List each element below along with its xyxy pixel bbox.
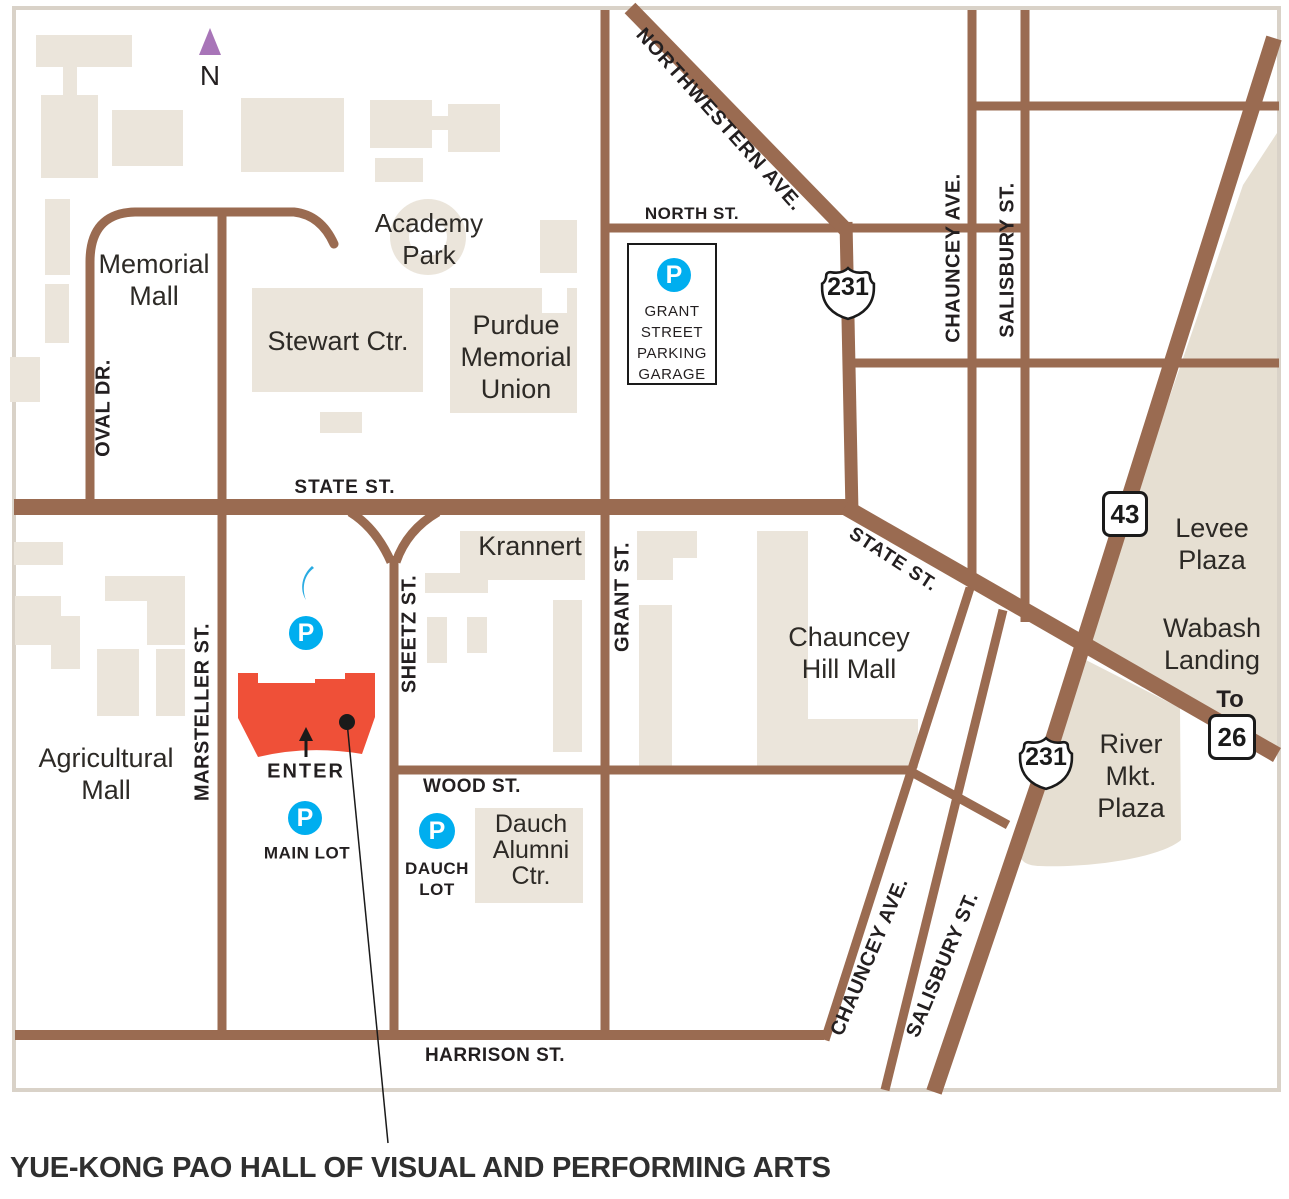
building [105, 576, 185, 601]
callout-line [347, 722, 388, 1143]
memorial-mall-label: MemorialMall [98, 248, 209, 312]
building [425, 573, 488, 593]
grant-street-label: GRANT ST. [612, 542, 635, 652]
building [45, 284, 69, 343]
label-line: Park [375, 239, 483, 271]
building [448, 104, 500, 152]
us-231-shield: 231 [819, 265, 877, 321]
agricultural-mall-label: AgriculturalMall [38, 742, 173, 806]
building [112, 110, 183, 166]
building [51, 616, 80, 669]
label-line: Agricultural [38, 742, 173, 774]
fountain-crescent [302, 566, 314, 600]
building [63, 67, 77, 95]
sheetz-street-road [396, 512, 438, 562]
label-line: Dauch [493, 811, 569, 837]
sheetz-street-label: SHEETZ ST. [399, 575, 422, 693]
parking-letter: P [297, 804, 314, 833]
label-line: Hill Mall [788, 653, 910, 685]
route-26-shield: 26 [1208, 714, 1256, 760]
building [637, 558, 673, 580]
grant-street-parking-garage-box: P GRANT STREET PARKING GARAGE [627, 243, 717, 385]
wabash-landing-label: WabashLanding [1163, 612, 1261, 676]
label-line: Wabash [1163, 612, 1261, 644]
building [432, 116, 450, 130]
map-graphic [0, 0, 1289, 1199]
building [467, 617, 487, 653]
building [36, 35, 132, 67]
building [375, 158, 423, 182]
building [14, 542, 63, 565]
building [97, 649, 139, 716]
salisbury-street-label-top: SALISBURY ST. [997, 182, 1020, 337]
label-line: Chauncey [788, 621, 910, 653]
garage-label: GRANT STREET PARKING GARAGE [629, 301, 715, 385]
compass-n-label: N [200, 60, 220, 92]
label-line: Levee [1175, 512, 1249, 544]
building [147, 601, 185, 645]
building [427, 617, 447, 663]
oval-drive-label: OVAL DR. [93, 359, 116, 457]
label-line: Mall [38, 774, 173, 806]
label-line: Ctr. [493, 863, 569, 889]
parking-letter: P [666, 261, 683, 290]
chauncey-avenue-label-top: CHAUNCEY AVE. [943, 173, 966, 343]
shield-number: 231 [1017, 743, 1075, 772]
route-43-shield: 43 [1102, 491, 1148, 537]
parking-icon: P [657, 258, 691, 292]
label-line: DAUCH [405, 858, 469, 879]
label-line: Landing [1163, 644, 1261, 676]
state-street-label: STATE ST. [294, 477, 395, 499]
to-label: To [1216, 686, 1244, 714]
north-arrow-icon [199, 28, 221, 55]
building [41, 95, 98, 178]
label-line: Alumni [493, 837, 569, 863]
label-line: PARKING [629, 343, 715, 364]
label-line: Memorial [98, 248, 209, 280]
label-line: Plaza [1175, 544, 1249, 576]
label-line: LOT [405, 879, 469, 900]
north-street-label: NORTH ST. [645, 204, 739, 224]
building [370, 100, 432, 148]
label-line: Memorial [460, 341, 571, 373]
krannert-label: Krannert [478, 530, 582, 562]
harrison-street-label: HARRISON ST. [425, 1045, 565, 1067]
building [156, 649, 185, 716]
parking-letter: P [298, 619, 315, 648]
label-line: Union [460, 373, 571, 405]
parking-icon: P [288, 801, 322, 835]
label-line: Purdue [460, 309, 571, 341]
parking-icon: P [419, 813, 455, 849]
building [241, 98, 344, 172]
academy-park-label: AcademyPark [375, 207, 483, 271]
campus-map: N STATE ST. STATE ST. NORTH ST. WOOD ST.… [0, 0, 1289, 1199]
parking-letter: P [429, 817, 446, 846]
main-lot-label: MAIN LOT [264, 843, 350, 864]
levee-plaza-label: LeveePlaza [1175, 512, 1249, 576]
stewart-center-label: Stewart Ctr. [267, 325, 408, 357]
label-line: GRANT [629, 301, 715, 322]
chauncey-hill-mall-label: ChaunceyHill Mall [788, 621, 910, 685]
map-title: YUE-KONG PAO HALL OF VISUAL AND PERFORMI… [10, 1152, 831, 1185]
building [10, 357, 40, 402]
us-231-shield: 231 [1017, 735, 1075, 791]
parking-icon: P [289, 616, 323, 650]
shield-number: 231 [819, 273, 877, 302]
label-line: Mall [98, 280, 209, 312]
building [639, 605, 672, 768]
dauch-alumni-ctr-label: DauchAlumniCtr. [493, 811, 569, 889]
sheetz-street-road [350, 512, 391, 562]
label-line: GARAGE [629, 364, 715, 385]
label-line: River [1097, 728, 1165, 760]
building [540, 220, 577, 273]
dauch-lot-label: DAUCHLOT [405, 858, 469, 900]
label-line: Mkt. [1097, 760, 1165, 792]
purdue-memorial-union-label: PurdueMemorialUnion [460, 309, 571, 405]
building [553, 600, 582, 752]
chauncey-hill-mall-building [808, 719, 918, 768]
building [45, 199, 70, 275]
building [320, 412, 362, 433]
wood-street-label: WOOD ST. [423, 776, 521, 798]
label-line: Plaza [1097, 792, 1165, 824]
enter-label: ENTER [267, 761, 345, 784]
river-mkt-plaza-label: RiverMkt.Plaza [1097, 728, 1165, 824]
building [637, 531, 697, 558]
label-line: STREET [629, 322, 715, 343]
label-line: Academy [375, 207, 483, 239]
marsteller-street-label: MARSTELLER ST. [192, 623, 215, 801]
